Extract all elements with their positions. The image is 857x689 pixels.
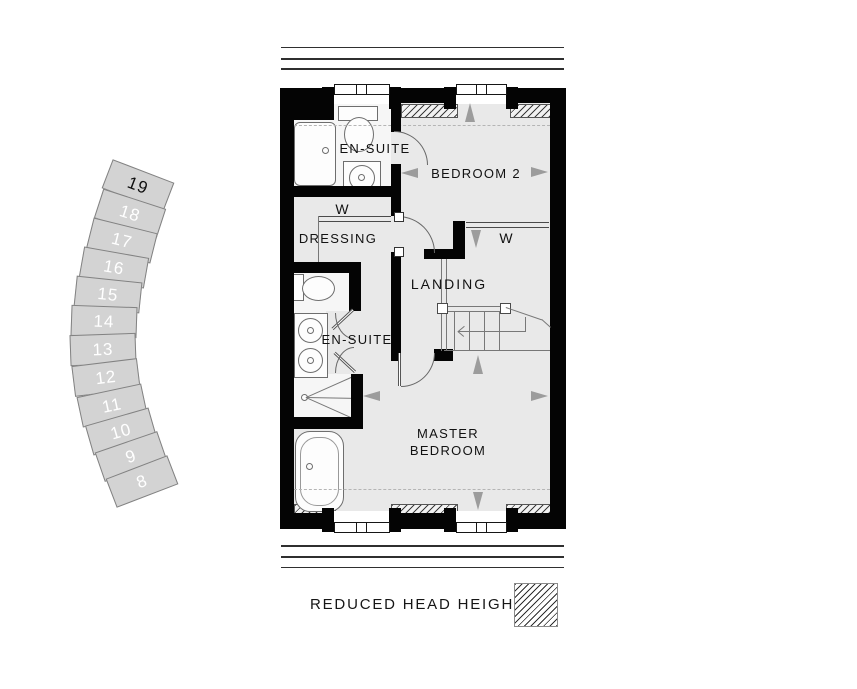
window-mullion (476, 84, 477, 94)
window-jamb (444, 508, 456, 532)
dimension-arrow-up (465, 103, 475, 122)
room-label-bedroom2: BEDROOM 2 (416, 166, 536, 181)
room-label-master-line2: BEDROOM (388, 443, 508, 458)
room-label-landing: LANDING (399, 276, 499, 292)
window-mullion (366, 84, 367, 94)
wall-shower-right (351, 374, 363, 418)
dimension-arrow-down (471, 230, 481, 248)
window-mullion (366, 522, 367, 532)
railing-post (437, 303, 448, 314)
toilet-bowl (302, 276, 335, 301)
head-height-dotted-line (294, 489, 550, 490)
window (334, 522, 390, 533)
site-line (281, 68, 564, 70)
legend-label: REDUCED HEAD HEIGHTS (310, 596, 537, 613)
stair-railing (444, 306, 504, 312)
window-mullion (356, 522, 357, 532)
wall-ensuite-bottom (293, 186, 401, 197)
wall-wc-right (349, 262, 361, 311)
window (334, 84, 390, 95)
window-mullion (486, 84, 487, 94)
stair-direction-line (458, 331, 526, 332)
head-height-dotted-line (294, 125, 550, 126)
room-label-dressing: DRESSING (288, 231, 388, 246)
window-mullion (356, 84, 357, 94)
window-jamb (389, 508, 401, 532)
window-jamb (506, 87, 518, 109)
sink-drain (358, 174, 365, 181)
window (456, 522, 507, 533)
room-label-ensuite-mid: EN-SUITE (307, 332, 407, 347)
floor-plan-page: EN-SUITE BEDROOM 2 W DRESSING W LANDING … (0, 0, 857, 689)
site-line (281, 567, 564, 568)
window-sill (456, 511, 506, 522)
window-sill (334, 511, 389, 522)
room-label-ensuite-top: EN-SUITE (325, 141, 425, 156)
sink-drain (307, 357, 314, 364)
site-line (281, 556, 564, 558)
room-label-master-line1: MASTER (388, 426, 508, 441)
dimension-arrow-up (473, 355, 483, 374)
bath-tap (306, 463, 313, 470)
window-jamb (444, 87, 456, 109)
site-line (281, 545, 564, 547)
room-label-wardrobe-bedroom2: W (487, 230, 527, 246)
door-jamb (394, 247, 404, 257)
dimension-arrow-right (531, 391, 548, 401)
window-jamb (322, 87, 334, 109)
dimension-arrow-left (401, 168, 418, 178)
site-line (281, 58, 564, 60)
stair-direction-line (525, 317, 526, 331)
window-mullion (486, 522, 487, 532)
window-jamb (506, 508, 518, 532)
wall-left (280, 88, 294, 529)
wall-right (550, 88, 566, 529)
room-label-wardrobe-dressing: W (323, 201, 363, 217)
wall-shower-bottom (293, 417, 363, 429)
wall-wardrobe-stub (453, 221, 465, 259)
stair-bottom-edge (444, 350, 550, 351)
door-jamb (394, 212, 404, 222)
dimension-arrow-down (473, 492, 483, 510)
dimension-arrow-left (363, 391, 380, 401)
window-jamb (389, 87, 401, 109)
legend-hatch-swatch (514, 583, 558, 627)
site-line (281, 47, 564, 48)
dimension-arrow-right (531, 167, 548, 177)
window-mullion (476, 522, 477, 532)
window-jamb (322, 508, 334, 532)
wardrobe-rail-bedroom2 (466, 222, 549, 228)
bath-inner (300, 437, 339, 506)
window (456, 84, 507, 95)
door-leaf-master (398, 353, 401, 386)
stair-riser (454, 311, 455, 350)
